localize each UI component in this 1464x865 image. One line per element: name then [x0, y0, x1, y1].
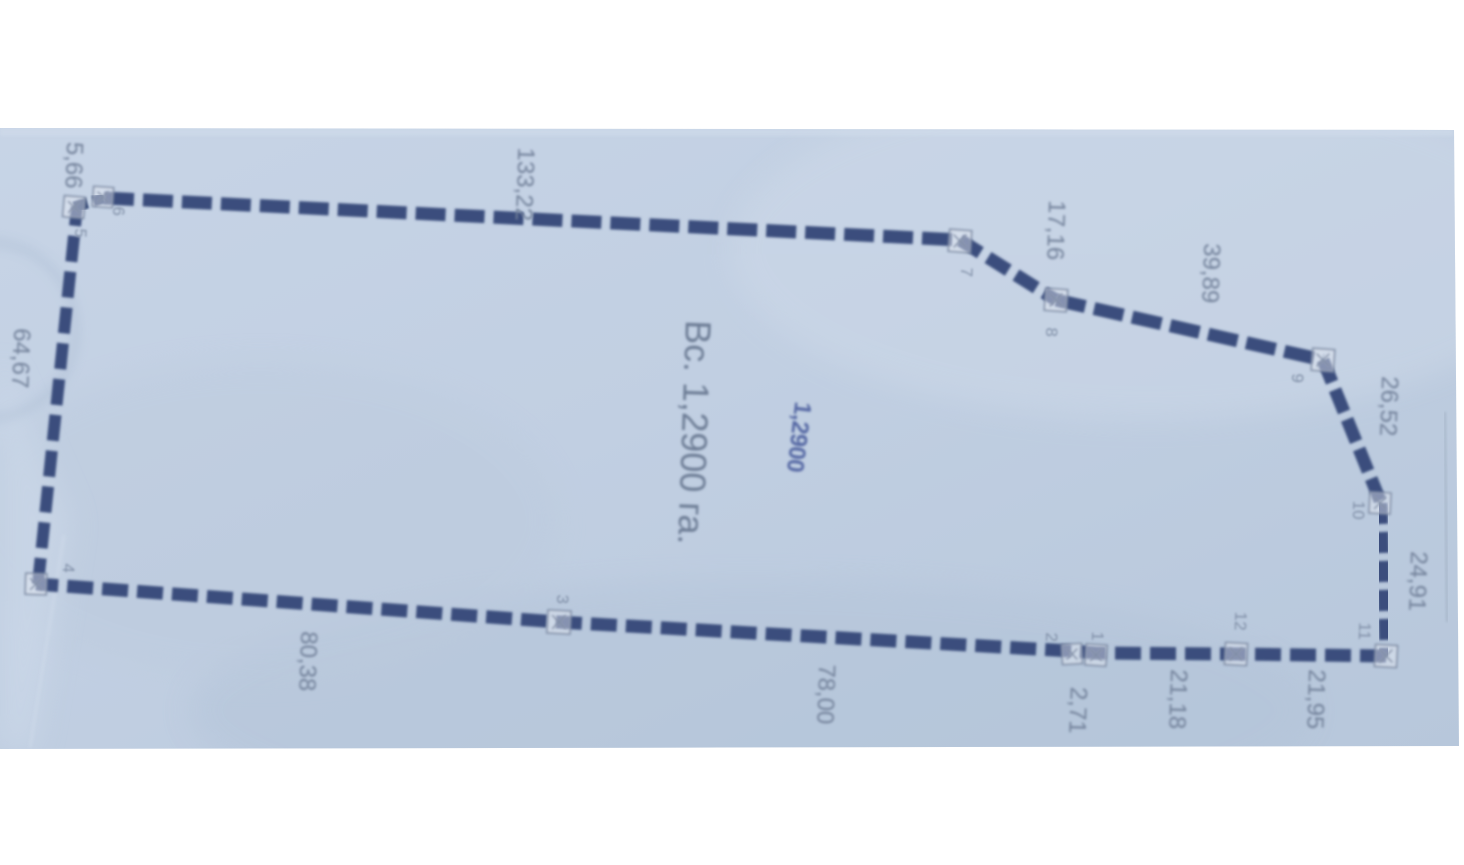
svg-text:9: 9 [1288, 373, 1307, 383]
svg-text:2: 2 [1042, 632, 1061, 642]
svg-text:1: 1 [1088, 631, 1107, 641]
svg-text:64,67: 64,67 [6, 328, 35, 389]
svg-text:80,38: 80,38 [293, 631, 322, 692]
svg-text:5: 5 [71, 228, 90, 238]
svg-text:2,71: 2,71 [1063, 686, 1092, 734]
svg-text:3: 3 [553, 594, 572, 604]
svg-text:133,22: 133,22 [510, 147, 540, 221]
svg-text:12: 12 [1231, 611, 1251, 631]
svg-text:4: 4 [59, 563, 78, 573]
svg-text:10: 10 [1349, 500, 1369, 520]
svg-text:78,00: 78,00 [811, 664, 840, 725]
svg-text:17,16: 17,16 [1041, 200, 1070, 261]
svg-text:21,18: 21,18 [1163, 669, 1192, 730]
svg-text:Вс. 1,2900 га.: Вс. 1,2900 га. [670, 320, 719, 546]
svg-text:8: 8 [1042, 327, 1061, 337]
svg-text:5,66: 5,66 [59, 141, 88, 189]
svg-text:21,95: 21,95 [1301, 669, 1330, 730]
svg-text:26,52: 26,52 [1374, 376, 1403, 437]
svg-text:11: 11 [1355, 622, 1375, 640]
svg-text:24,91: 24,91 [1403, 551, 1432, 612]
svg-text:7: 7 [957, 267, 976, 277]
svg-text:39,89: 39,89 [1196, 243, 1225, 304]
svg-text:6: 6 [109, 206, 128, 216]
